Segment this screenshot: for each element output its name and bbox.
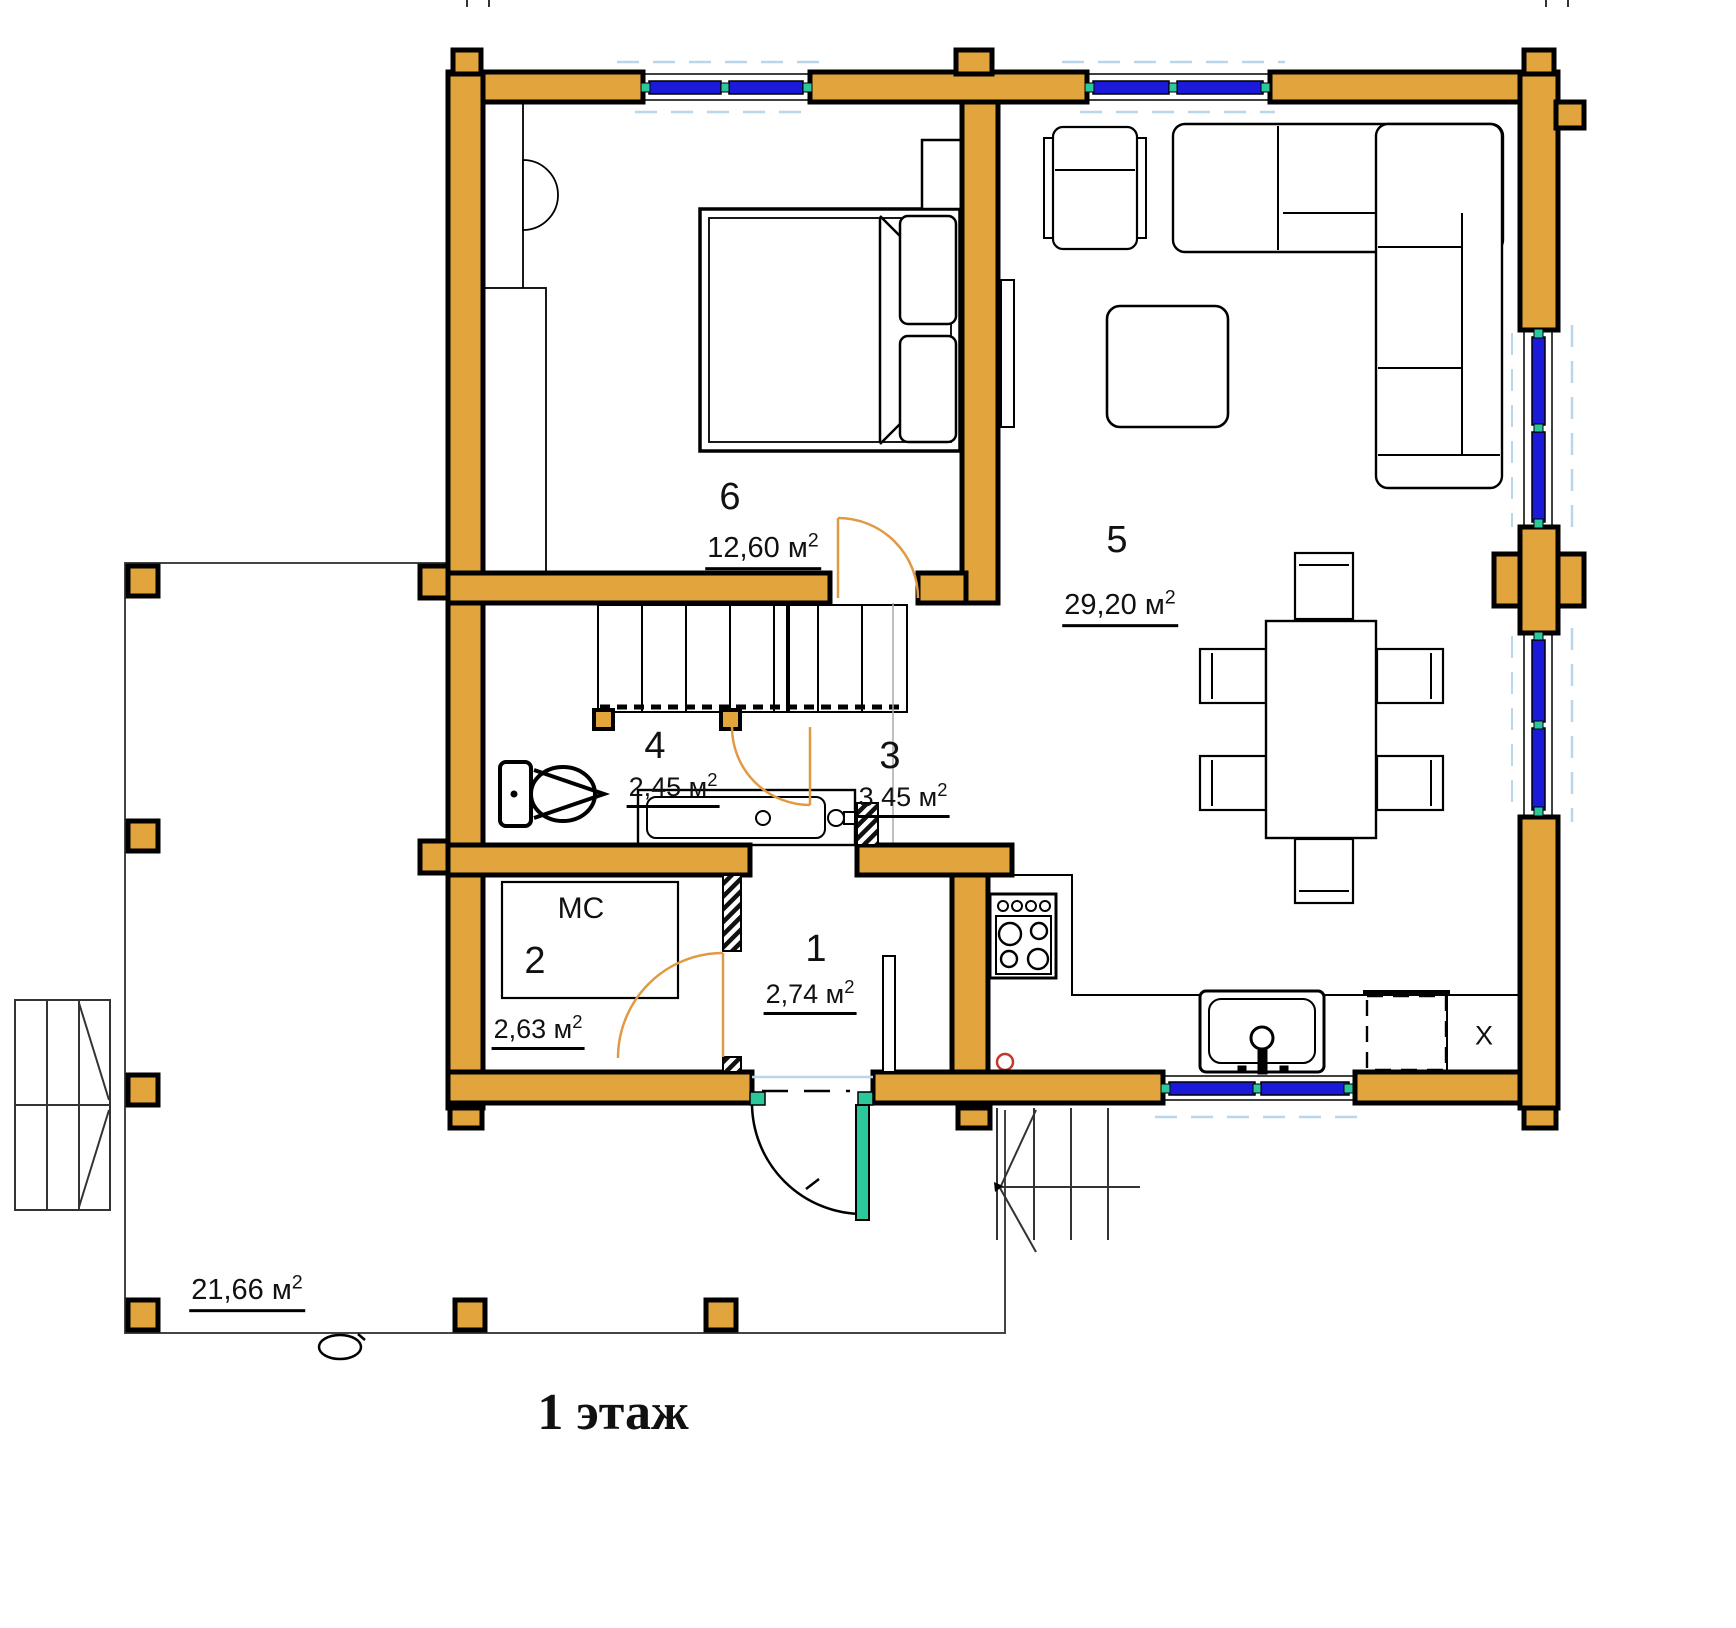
interior-wall xyxy=(448,573,830,603)
room5-number: 5 xyxy=(1106,521,1127,559)
window-glass xyxy=(1532,337,1545,425)
armchair xyxy=(1044,127,1146,249)
faucet-icon xyxy=(828,810,844,826)
stair-post xyxy=(594,710,613,729)
fridge-label: X xyxy=(1475,1023,1493,1050)
corner-sofa xyxy=(1173,124,1503,488)
window-glass xyxy=(1093,81,1169,94)
floor-plan: 6 12,60 м2 5 29,20 м2 4 2,45 м2 3 3,45 м… xyxy=(0,0,1736,1628)
washing-machine-label: МС xyxy=(558,894,605,924)
window xyxy=(617,62,820,112)
window-glass xyxy=(1261,1082,1349,1095)
downspout-symbol xyxy=(319,1334,365,1359)
page-title: 1 этаж xyxy=(537,1387,688,1439)
terrace-post xyxy=(706,1300,736,1330)
log-wall-top xyxy=(810,72,1087,102)
outside-stairs-left xyxy=(15,1000,110,1210)
pillow xyxy=(900,216,956,324)
bed xyxy=(700,209,960,451)
log-end xyxy=(453,50,481,74)
room4-number: 4 xyxy=(644,727,665,765)
terrace-area: 21,66 м2 xyxy=(189,1273,305,1305)
interior-wall xyxy=(918,573,966,603)
staircase xyxy=(594,605,907,729)
terrace-post xyxy=(128,1300,158,1330)
log-end xyxy=(1558,554,1584,606)
window-glass xyxy=(1177,81,1263,94)
door-leaf xyxy=(856,1105,869,1220)
room2-area: 2,63 м2 xyxy=(492,1013,585,1043)
window-glass xyxy=(1532,728,1545,810)
log-end xyxy=(958,1108,990,1128)
toilet-icon xyxy=(500,762,604,826)
log-end xyxy=(420,841,448,873)
log-end xyxy=(1524,50,1554,74)
window-glass xyxy=(1532,640,1545,722)
window-glass xyxy=(729,81,803,94)
outside-stairs-right xyxy=(994,1108,1140,1252)
pillow xyxy=(900,336,956,442)
faucet-icon xyxy=(1251,1027,1273,1049)
log-end xyxy=(1524,1108,1556,1128)
log-wall-right xyxy=(1520,817,1558,1108)
coffee-table xyxy=(1107,306,1228,427)
red-marker xyxy=(997,1054,1013,1070)
dining-chair xyxy=(1295,553,1353,619)
log-end xyxy=(1494,554,1520,606)
dining-chair xyxy=(1200,649,1266,703)
window-glass xyxy=(1169,1082,1255,1095)
room2-number: 2 xyxy=(524,942,545,980)
log-end xyxy=(420,566,448,598)
dining-table xyxy=(1266,621,1376,838)
elevation-marks xyxy=(467,0,1568,7)
window xyxy=(1512,628,1572,822)
entrance-door xyxy=(750,1077,873,1220)
room6-area: 12,60 м2 xyxy=(705,531,821,563)
kitchen-sink xyxy=(1200,991,1324,1074)
room6-number: 6 xyxy=(719,478,740,516)
interior-wall xyxy=(448,845,750,875)
door-room6 xyxy=(838,518,918,598)
dishwasher xyxy=(1363,992,1450,1070)
interior-wall xyxy=(952,875,988,1072)
room1-area: 2,74 м2 xyxy=(764,978,857,1008)
room1-number: 1 xyxy=(805,930,826,968)
stove-column xyxy=(523,160,558,230)
window xyxy=(1155,1076,1362,1117)
dining-chair xyxy=(1295,839,1353,903)
window-glass xyxy=(1532,432,1545,522)
dining-chair xyxy=(1377,756,1443,810)
stair-post xyxy=(721,710,740,729)
room3-number: 3 xyxy=(879,737,900,775)
log-wall-right xyxy=(1520,527,1558,633)
log-wall-bottom xyxy=(873,1072,1163,1103)
log-wall-bottom xyxy=(448,1072,752,1103)
terrace-post xyxy=(128,1075,158,1105)
log-end xyxy=(450,1108,482,1128)
window xyxy=(1062,62,1285,112)
window-glass xyxy=(649,81,721,94)
log-wall-right xyxy=(1520,72,1558,330)
dining-set xyxy=(1200,553,1443,903)
terrace-post xyxy=(128,821,158,851)
terrace-post xyxy=(128,566,158,596)
log-end xyxy=(956,50,992,74)
log-end xyxy=(1556,102,1584,128)
stove-icon xyxy=(990,894,1056,978)
dining-chair xyxy=(1377,649,1443,703)
terrace-post xyxy=(455,1300,485,1330)
dining-chair xyxy=(1200,756,1266,810)
nightstand xyxy=(922,140,962,209)
log-wall-bottom xyxy=(1355,1072,1520,1103)
interior-wall xyxy=(857,845,1012,875)
closet xyxy=(483,102,558,573)
interior-wall xyxy=(962,102,998,603)
room3-area: 3,45 м2 xyxy=(857,781,950,811)
room4-area: 2,45 м2 xyxy=(627,771,720,801)
log-wall-top xyxy=(1270,72,1520,102)
room5-area: 29,20 м2 xyxy=(1062,588,1178,620)
window xyxy=(1512,325,1572,532)
